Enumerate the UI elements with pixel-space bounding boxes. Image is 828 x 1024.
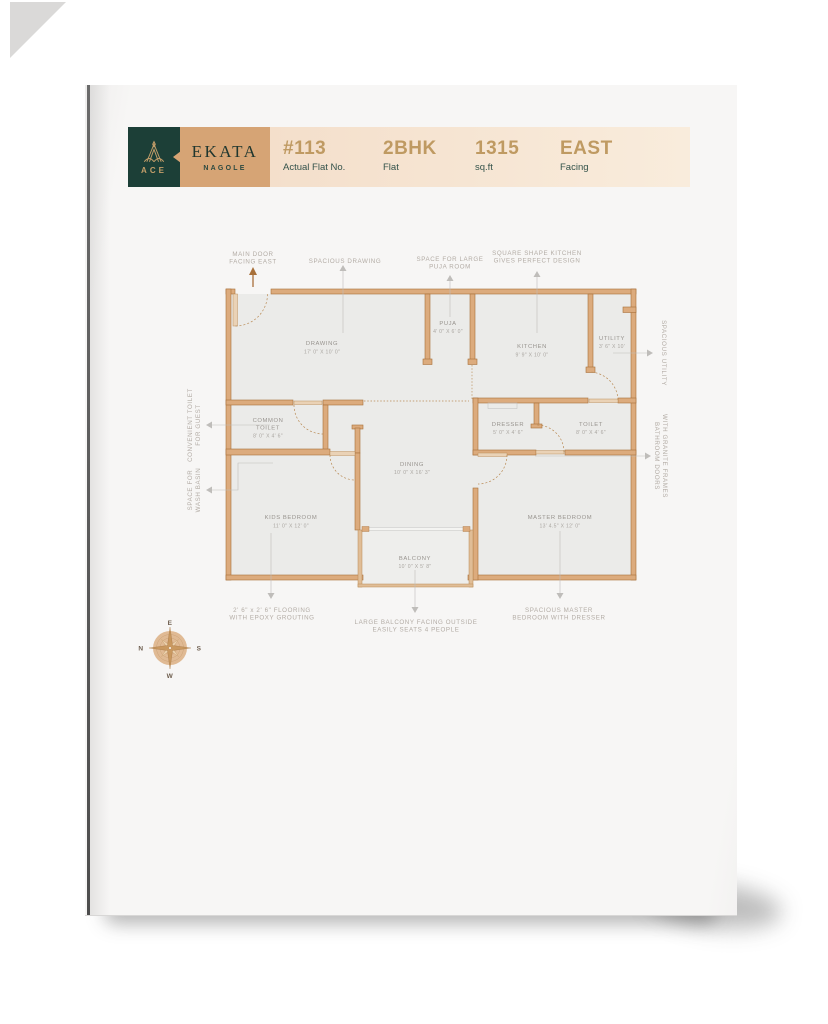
- room-dim-dresser: 5' 0" X 4' 6": [493, 430, 523, 436]
- room-dim-balcony: 10' 0" X 5' 8": [399, 564, 432, 570]
- note-flooring-1: 2' 6" x 2' 6" FLOORING: [233, 607, 311, 614]
- room-label-dresser: DRESSER: [492, 422, 524, 428]
- room-label-toilet: TOILET: [579, 422, 603, 428]
- note-master-1: SPACIOUS MASTER: [525, 607, 593, 614]
- main-door-arrow-icon: [249, 267, 257, 287]
- note-puja-room-2: PUJA ROOM: [429, 264, 471, 271]
- note-spacious-drawing: SPACIOUS DRAWING: [309, 258, 382, 265]
- compass-south: S: [197, 646, 202, 653]
- room-dim-puja: 4' 0" X 6' 0": [433, 329, 463, 335]
- note-balcony-1: LARGE BALCONY FACING OUTSIDE: [355, 619, 478, 626]
- room-floors: [231, 294, 631, 585]
- room-label-common-toilet-1: COMMON: [253, 418, 284, 424]
- room-dim-dining: 10' 0" X 16' 3": [394, 470, 430, 476]
- room-label-kids-bedroom: KIDS BEDROOM: [265, 515, 318, 521]
- note-kitchen-2: GIVES PERFECT DESIGN: [494, 258, 581, 265]
- room-label-balcony: BALCONY: [399, 556, 431, 562]
- room-dim-common-toilet: 8' 0" X 4' 6": [253, 434, 283, 440]
- room-label-puja: PUJA: [439, 321, 456, 327]
- note-wash-basin-1: SPACE FOR: [187, 470, 194, 511]
- floor-plan: DRAWING 17' 0" X 10' 0" PUJA 4' 0" X 6' …: [85, 85, 737, 915]
- brand-name: ACE: [141, 166, 167, 175]
- background-sheet-corner: [10, 2, 66, 58]
- room-dim-master-bedroom: 13' 4.5" X 12' 0": [540, 524, 581, 530]
- note-guest-toilet-1: CONVENIENT TOILET: [187, 388, 194, 462]
- project-block-notch: [173, 151, 181, 163]
- room-dim-utility: 3' 6" X 10': [599, 344, 625, 350]
- room-label-common-toilet-2: TOILET: [256, 426, 280, 432]
- room-label-kitchen: KITCHEN: [517, 344, 547, 350]
- room-dim-toilet: 8' 0" X 4' 6": [576, 430, 606, 436]
- room-dim-kids-bedroom: 11' 0" X 12' 0": [273, 524, 309, 530]
- note-wash-basin-2: WASH BASIN: [195, 468, 202, 513]
- compass-east: E: [168, 620, 173, 627]
- room-dim-kitchen: 9' 9" X 10' 0": [516, 353, 549, 359]
- ace-monogram-icon: [141, 140, 167, 164]
- note-guest-toilet-2: FOR GUEST: [195, 404, 202, 446]
- brochure-page: ACE EKATA NAGOLE #113 Actual Flat No. 2B…: [85, 85, 737, 916]
- note-puja-room-1: SPACE FOR LARGE: [417, 256, 484, 263]
- note-bathroom-doors-1: BATHROOM DOORS: [653, 422, 660, 490]
- note-flooring-2: WITH EPOXY GROUTING: [229, 615, 314, 622]
- note-kitchen-1: SQUARE SHAPE KITCHEN: [492, 250, 582, 257]
- note-main-door-1: MAIN DOOR: [232, 251, 273, 258]
- note-spacious-utility: SPACIOUS UTILITY: [660, 320, 667, 386]
- compass-north: N: [138, 646, 143, 653]
- note-main-door-2: FACING EAST: [229, 259, 277, 266]
- room-label-master-bedroom: MASTER BEDROOM: [528, 515, 593, 521]
- note-bathroom-doors-2: WITH GRANITE FRAMES: [661, 414, 668, 498]
- room-label-dining: DINING: [400, 462, 424, 468]
- note-master-2: BEDROOM WITH DRESSER: [512, 615, 605, 622]
- room-label-drawing: DRAWING: [306, 341, 338, 347]
- room-label-utility: UTILITY: [599, 336, 625, 342]
- note-balcony-2: EASILY SEATS 4 PEOPLE: [373, 627, 460, 634]
- compass-rose-icon: E N S W: [138, 620, 201, 680]
- brochure-mockup: ACE EKATA NAGOLE #113 Actual Flat No. 2B…: [0, 0, 828, 1024]
- compass-west: W: [167, 673, 174, 680]
- room-dim-drawing: 17' 0" X 10' 0": [304, 350, 340, 356]
